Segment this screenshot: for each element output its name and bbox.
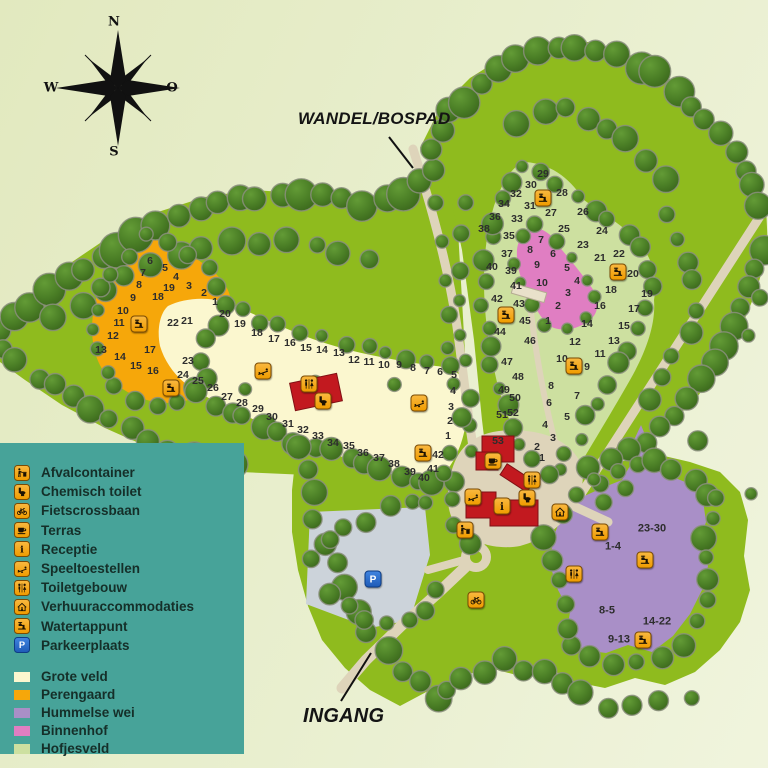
pitch-marker-hofjesveld: 18: [605, 285, 617, 296]
pitch-marker-grote_veld: 21: [181, 316, 193, 327]
legend-item-label: Fietscrossbaan: [41, 503, 140, 518]
pitch-marker-grote_veld: 37: [373, 453, 385, 464]
chemisch-toilet-icon: [315, 393, 332, 410]
legend-area-item: Hummelse wei: [14, 704, 244, 722]
afvalcontainer-icon: [457, 522, 474, 539]
pitch-marker-hofjesveld: 45: [519, 316, 531, 327]
watertappunt-icon: [415, 445, 432, 462]
pitch-marker-hofjesveld: 3: [550, 433, 556, 444]
pitch-marker-hofjesveld: 15: [618, 321, 630, 332]
pitch-marker-grote_veld: 12: [348, 355, 360, 366]
legend-area-item: Binnenhof: [14, 722, 244, 740]
pitch-marker-perengaard: 12: [107, 331, 119, 342]
legend-items: AfvalcontainerChemisch toiletFietscrossb…: [14, 463, 244, 655]
pitch-marker-hofjesveld: 34: [498, 199, 510, 210]
entrance-label: INGANG: [303, 706, 384, 726]
legend-item: Verhuuraccommodaties: [14, 597, 244, 616]
pitch-marker-binnenhof: 10: [536, 278, 548, 289]
pitch-marker-hofjesveld: 29: [537, 169, 549, 180]
pitch-marker-hofjesveld: 44: [494, 327, 506, 338]
area-color-swatch: [14, 726, 30, 736]
pitch-marker-hofjesveld: 40: [486, 262, 498, 273]
path-label: WANDEL/BOSPAD: [298, 110, 450, 127]
pitch-marker-grote_veld: 38: [388, 459, 400, 470]
pitch-marker-grote_veld: 19: [234, 319, 246, 330]
pitch-marker-hofjesveld: 42: [491, 294, 503, 305]
legend-item-label: Verhuuraccommodaties: [41, 599, 194, 614]
terras-icon: [14, 522, 30, 538]
compass-south-label: S: [109, 145, 118, 160]
pitch-marker-hofjesveld: 14: [581, 319, 593, 330]
watertappunt-icon: [566, 358, 583, 375]
pitch-marker-hofjesveld: 17: [628, 304, 640, 315]
pitch-marker-grote_veld: 20: [219, 309, 231, 320]
pitch-marker-binnenhof: 9: [534, 260, 540, 271]
pitch-marker-hofjesveld: 13: [608, 336, 620, 347]
parkeerplaats-icon: [14, 637, 30, 653]
legend-area-label: Hofjesveld: [41, 741, 109, 756]
pitch-marker-perengaard: 18: [152, 292, 164, 303]
pitch-marker-grote_veld: 39: [404, 467, 416, 478]
verhuuraccommodaties-icon: [14, 599, 30, 615]
pitch-marker-hofjesveld: 51: [496, 410, 508, 421]
compass-rose: [56, 30, 180, 146]
pitch-range-label: 9-13: [608, 635, 630, 646]
legend-item: Toiletgebouw: [14, 578, 244, 597]
pitch-marker-hofjesveld: 47: [501, 357, 513, 368]
pitch-marker-hofjesveld: 38: [478, 224, 490, 235]
verhuuraccommodaties-icon: [552, 504, 569, 521]
watertappunt-icon: [635, 632, 652, 649]
pitch-marker-grote_veld: 8: [410, 363, 416, 374]
park-map: i: [0, 0, 768, 768]
pitch-marker-hofjesveld: 12: [569, 337, 581, 348]
pitch-marker-hofjesveld: 4: [542, 420, 548, 431]
pitch-marker-perengaard: 7: [140, 268, 146, 279]
pitch-marker-binnenhof: 1: [545, 316, 551, 327]
afvalcontainer-icon: [14, 465, 30, 481]
pitch-marker-grote_veld: 9: [396, 360, 402, 371]
chemisch-toilet-icon: [14, 484, 30, 500]
pitch-marker-perengaard: 19: [163, 283, 175, 294]
compass-west-label: W: [44, 81, 59, 96]
pitch-marker-grote_veld: 42: [432, 450, 444, 461]
pitch-marker-grote_veld: 6: [437, 367, 443, 378]
watertappunt-icon: [14, 618, 30, 634]
pitch-range-label: 14-22: [643, 617, 671, 628]
pitch-marker-hofjesveld: 33: [511, 214, 523, 225]
pitch-marker-hofjesveld: 37: [501, 249, 513, 260]
pitch-marker-grote_veld: 10: [378, 360, 390, 371]
pitch-range-label: 1-4: [605, 542, 621, 553]
pitch-marker-binnenhof: 4: [574, 276, 580, 287]
pitch-marker-hofjesveld: 2: [534, 442, 540, 453]
pitch-marker-hofjesveld: 21: [594, 253, 606, 264]
pitch-marker-hofjesveld: 19: [641, 289, 653, 300]
pitch-marker-hofjesveld: 36: [489, 212, 501, 223]
legend-item-label: Afvalcontainer: [41, 465, 135, 480]
watertappunt-icon: [535, 190, 552, 207]
pitch-marker-hofjesveld: 1: [539, 453, 545, 464]
pitch-marker-hofjesveld: 30: [525, 180, 537, 191]
pitch-marker-grote_veld: 41: [427, 464, 439, 475]
legend-areas: Grote veldPerengaardHummelse weiBinnenho…: [14, 668, 244, 758]
speeltoestellen-icon: [411, 395, 428, 412]
toiletgebouw-icon: [524, 472, 541, 489]
speeltoestellen-icon: [465, 489, 482, 506]
legend-item: Chemisch toilet: [14, 482, 244, 501]
pitch-marker-grote_veld: 18: [251, 328, 263, 339]
pitch-marker-hofjesveld: 16: [594, 301, 606, 312]
legend-item-label: Terras: [41, 523, 81, 538]
pitch-marker-perengaard: 10: [117, 306, 129, 317]
pitch-marker-grote_veld: 23: [182, 356, 194, 367]
pitch-range-label: 8-5: [599, 606, 615, 617]
pitch-marker-grote_veld: 26: [207, 383, 219, 394]
toiletgebouw-icon: [14, 580, 30, 596]
legend-item-label: Toiletgebouw: [41, 580, 127, 595]
legend-area-label: Perengaard: [41, 687, 115, 702]
pitch-marker-hofjesveld: 24: [596, 226, 608, 237]
pitch-marker-grote_veld: 2: [447, 416, 453, 427]
pitch-marker-perengaard: 15: [130, 361, 142, 372]
pitch-marker-hofjesveld: 27: [545, 208, 557, 219]
pitch-marker-grote_veld: 36: [357, 448, 369, 459]
legend-item: Terras: [14, 521, 244, 540]
pitch-marker-perengaard: 4: [173, 272, 179, 283]
pitch-marker-binnenhof: 2: [555, 301, 561, 312]
pitch-marker-hofjesveld: 49: [498, 385, 510, 396]
pitch-marker-hofjesveld: 9: [584, 362, 590, 373]
legend-item-label: Watertappunt: [41, 619, 128, 634]
pitch-marker-binnenhof: 8: [527, 245, 533, 256]
watertappunt-icon: [163, 380, 180, 397]
legend-item: Receptie: [14, 540, 244, 559]
legend-area-label: Binnenhof: [41, 723, 108, 738]
area-color-swatch: [14, 690, 30, 700]
area-color-swatch: [14, 744, 30, 754]
pitch-marker-perengaard: 17: [144, 345, 156, 356]
watertappunt-icon: [498, 307, 515, 324]
legend-panel: AfvalcontainerChemisch toiletFietscrossb…: [0, 443, 244, 754]
legend-item: Watertappunt: [14, 617, 244, 636]
pitch-marker-grote_veld: 7: [424, 366, 430, 377]
fietscrossbaan-icon: [468, 592, 485, 609]
pitch-marker-hofjesveld: 26: [577, 207, 589, 218]
watertappunt-icon: [131, 316, 148, 333]
legend-area-label: Hummelse wei: [41, 705, 135, 720]
legend-area-item: Perengaard: [14, 686, 244, 704]
legend-item-label: Receptie: [41, 542, 97, 557]
pitch-marker-grote_veld: 14: [316, 345, 328, 356]
toiletgebouw-icon: [301, 376, 318, 393]
pitch-marker-hofjesveld: 8: [548, 381, 554, 392]
pitch-marker-hofjesveld: 46: [524, 336, 536, 347]
parkeerplaats-icon: [365, 571, 382, 588]
speeltoestellen-icon: [255, 363, 272, 380]
pitch-marker-binnenhof: 6: [550, 249, 556, 260]
legend-item: Fietscrossbaan: [14, 501, 244, 520]
pitch-marker-hofjesveld: 28: [556, 188, 568, 199]
pitch-marker-perengaard: 6: [147, 256, 153, 267]
pitch-marker-hofjesveld: 43: [513, 299, 525, 310]
speeltoestellen-icon: [14, 561, 30, 577]
area-color-swatch: [14, 672, 30, 682]
pitch-marker-hofjesveld: 39: [505, 266, 517, 277]
pitch-marker-perengaard: 5: [162, 263, 168, 274]
pitch-marker-hofjesveld: 11: [594, 349, 605, 360]
pitch-marker-hofjesveld: 5: [564, 412, 570, 423]
pitch-marker-hofjesveld: 35: [503, 231, 515, 242]
receptie-icon: [494, 498, 511, 515]
area-color-swatch: [14, 708, 30, 718]
watertappunt-icon: [610, 264, 627, 281]
legend-item: Afvalcontainer: [14, 463, 244, 482]
pitch-range-label: 23-30: [638, 524, 666, 535]
pitch-marker-perengaard: 2: [201, 288, 207, 299]
pitch-marker-perengaard: 11: [113, 318, 124, 329]
watertappunt-icon: [592, 524, 609, 541]
pitch-marker-perengaard: 13: [95, 345, 107, 356]
pitch-marker-hofjesveld: 22: [613, 249, 625, 260]
pitch-marker-binnenhof: 5: [564, 263, 570, 274]
pitch-marker-grote_veld: 11: [363, 357, 374, 368]
pitch-marker-binnenhof: 3: [565, 288, 571, 299]
legend-item: Parkeerplaats: [14, 636, 244, 655]
terras-icon: [485, 453, 502, 470]
pitch-marker-grote_veld: 31: [282, 419, 294, 430]
pitch-marker-grote_veld: 24: [177, 370, 189, 381]
pitch-marker-grote_veld: 32: [297, 425, 309, 436]
pitch-marker-hofjesveld: 52: [507, 408, 519, 419]
pitch-marker-binnenhof: 7: [538, 235, 544, 246]
pitch-marker-grote_veld: 35: [343, 441, 355, 452]
pitch-marker-perengaard: 1: [212, 297, 218, 308]
pitch-marker-perengaard: 3: [186, 281, 192, 292]
compass-north-label: N: [108, 15, 120, 30]
legend-item: Speeltoestellen: [14, 559, 244, 578]
pitch-marker-grote_veld: 5: [451, 370, 457, 381]
pitch-marker-hofjesveld: 32: [510, 189, 522, 200]
pitch-marker-grote_veld: 17: [268, 334, 280, 345]
pitch-marker-hofjesveld: 41: [510, 281, 522, 292]
legend-area-label: Grote veld: [41, 669, 108, 684]
pitch-marker-grote_veld: 13: [333, 348, 345, 359]
watertappunt-icon: [637, 552, 654, 569]
receptie-icon: [14, 541, 30, 557]
pitch-marker-hofjesveld: 23: [577, 240, 589, 251]
pitch-marker-grote_veld: 15: [300, 343, 312, 354]
legend-area-item: Hofjesveld: [14, 740, 244, 758]
toiletgebouw-icon: [566, 566, 583, 583]
pitch-marker-grote_veld: 22: [167, 318, 179, 329]
legend-area-item: Grote veld: [14, 668, 244, 686]
pitch-marker-hofjesveld: 48: [512, 372, 524, 383]
pitch-marker-hofjesveld: 7: [574, 391, 580, 402]
pitch-marker-hofjesveld: 50: [509, 393, 521, 404]
pitch-marker-perengaard: 14: [114, 352, 126, 363]
pitch-marker-grote_veld: 29: [252, 404, 264, 415]
legend-item-label: Speeltoestellen: [41, 561, 140, 576]
pitch-marker-grote_veld: 30: [266, 412, 278, 423]
pitch-marker-grote_veld: 34: [327, 438, 339, 449]
pitch-marker-hofjesveld: 53: [492, 436, 504, 447]
compass-east-label: O: [166, 81, 177, 96]
pitch-marker-hofjesveld: 25: [558, 224, 570, 235]
pitch-marker-grote_veld: 4: [450, 386, 456, 397]
pitch-marker-hofjesveld: 20: [627, 269, 639, 280]
pitch-marker-grote_veld: 28: [236, 398, 248, 409]
pitch-marker-grote_veld: 16: [284, 338, 296, 349]
pitch-marker-grote_veld: 33: [312, 431, 324, 442]
pitch-marker-grote_veld: 3: [448, 402, 454, 413]
pitch-marker-grote_veld: 27: [221, 392, 233, 403]
chemisch-toilet-icon: [519, 490, 536, 507]
pitch-marker-hofjesveld: 6: [546, 398, 552, 409]
fietscrossbaan-icon: [14, 503, 30, 519]
pitch-marker-perengaard: 16: [147, 366, 159, 377]
legend-item-label: Chemisch toilet: [41, 484, 142, 499]
pitch-marker-perengaard: 8: [136, 280, 142, 291]
legend-item-label: Parkeerplaats: [41, 638, 130, 653]
pitch-marker-perengaard: 9: [130, 293, 136, 304]
pitch-marker-grote_veld: 25: [192, 376, 204, 387]
pitch-marker-grote_veld: 1: [445, 431, 451, 442]
